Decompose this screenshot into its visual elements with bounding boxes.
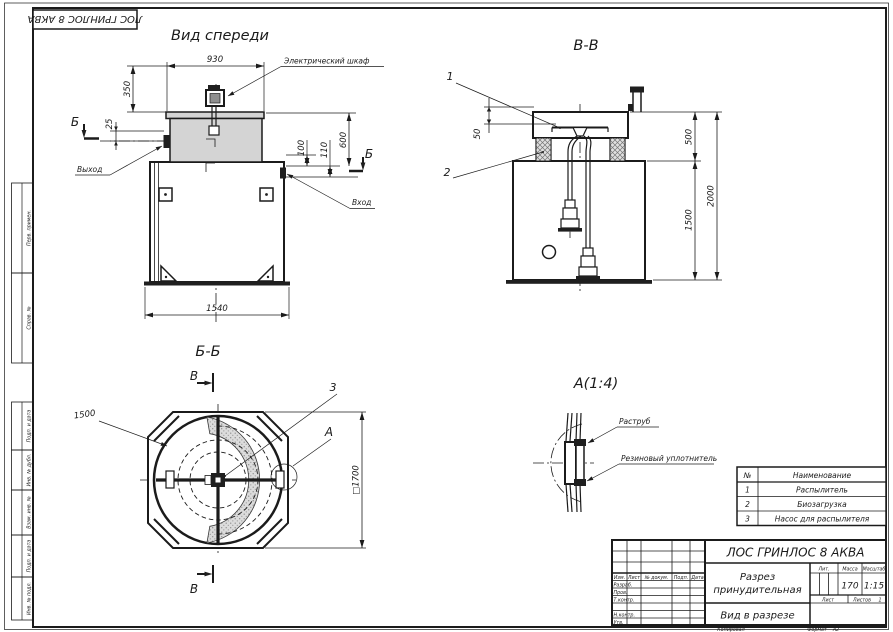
dim-text: 110	[320, 142, 330, 158]
detail-letter: А	[324, 425, 333, 439]
mass-value: 170	[841, 582, 858, 592]
doc-title: ЛОС ГРИНЛОС 8 АКВА	[726, 546, 865, 560]
section-letter: В	[190, 582, 198, 596]
margin-box-inv-dubl: Инв. № дубл.	[12, 450, 34, 490]
socket-body	[565, 442, 576, 484]
table-header-name: Наименование	[793, 471, 852, 480]
callout-number: 3	[330, 381, 337, 394]
section-view-vv: В-В	[444, 38, 723, 292]
base-plate	[144, 282, 290, 286]
dim-text: 350	[123, 81, 133, 97]
row-num: 2	[745, 500, 750, 509]
biofill-block-left	[536, 138, 551, 161]
top-stamp-text: ЛОС ГРИНЛОС 8 АКВА	[27, 13, 143, 24]
margin-label: Подп. и дата	[27, 540, 33, 573]
outlet-callout: Выход	[75, 146, 162, 175]
view-name-line1: Разрез	[740, 572, 775, 583]
dim-text: 1500	[685, 209, 695, 231]
socket-sleeve	[576, 445, 584, 481]
vent-pipe	[628, 87, 644, 113]
sheet-label: Лист	[821, 598, 834, 604]
dim-text: 1540	[206, 304, 228, 314]
callout-number: 1	[447, 70, 454, 83]
sheet-frame: ЛОС ГРИНЛОС 8 АКВА Перв. примен. Справ. …	[5, 3, 889, 630]
outlet-label: Выход	[77, 165, 102, 174]
row-tkontr: Т.контр.	[614, 598, 635, 604]
row-razrab: Разраб.	[614, 583, 633, 589]
dim-text: 2000	[707, 185, 717, 207]
margin-label: Подп. и дата	[27, 410, 33, 443]
margin-box-inv-podl: Инв. № подл.	[12, 577, 34, 620]
view-name-line2: принудительная	[713, 585, 801, 596]
seal-label: Резиновый уплотнитель	[621, 454, 717, 463]
view-type: Вид в разрезе	[720, 611, 794, 622]
section-marker-b-right: Б	[349, 147, 373, 171]
detail-a-callout: А	[293, 425, 333, 466]
section-marker-v-bottom: В	[190, 565, 213, 596]
detail-a-title: А(1:4)	[573, 376, 619, 392]
section-letter: Б	[71, 115, 79, 129]
section-letter: Б	[365, 147, 373, 161]
section-marker-b-left: Б	[71, 115, 99, 139]
socket-label: Раструб	[619, 417, 651, 426]
col-doc: № докум.	[644, 575, 669, 581]
scale-value: 1:15	[864, 582, 884, 592]
margin-box-sprav-no: Справ. №	[12, 273, 34, 363]
parts-table: № Наименование 1 Распылитель 2 Биозагруз…	[737, 467, 886, 526]
cabinet-callout: Электрический шкаф	[228, 57, 384, 97]
seal-callout: Резиновый уплотнитель	[587, 454, 717, 481]
mass-label: Масса	[842, 567, 857, 573]
dim-text: 100	[297, 140, 307, 156]
margin-box-podp-data-1: Подп. и дата	[12, 402, 34, 450]
base-plate	[506, 280, 652, 284]
margin-box-vzam-inv: Взам. инв. №	[12, 490, 34, 535]
row-num: 1	[745, 486, 750, 495]
coupling-right	[276, 471, 284, 488]
dim-text: 500	[685, 129, 695, 145]
copied-label: Копировал	[717, 627, 744, 632]
margin-label: Справ. №	[27, 306, 33, 329]
col-data: Дата	[690, 575, 703, 581]
drawing-sheet: ЛОС ГРИНЛОС 8 АКВА Перв. примен. Справ. …	[0, 0, 893, 632]
dim-text: 600	[339, 132, 349, 148]
inlet-callout: Вход	[287, 174, 375, 209]
dim-text: 50	[473, 129, 483, 140]
cabinet-label: Электрический шкаф	[283, 57, 370, 66]
row-name: Насос для распылителя	[775, 515, 870, 524]
dim-350: 350	[123, 66, 168, 112]
format-label: Формат	[807, 627, 827, 632]
row-nkontr: Н.контр.	[614, 613, 635, 619]
wall-pipe-penetration	[565, 413, 586, 512]
margin-label: Перв. примен.	[27, 210, 33, 246]
coupling-left	[166, 471, 174, 488]
callout-number: 2	[444, 166, 451, 179]
row-prov: Пров.	[614, 590, 628, 596]
margin-label: Взам. инв. №	[27, 496, 33, 529]
section-marker-v-top: В	[190, 369, 213, 392]
sheets-value: 1	[878, 598, 881, 604]
section-letter: В	[190, 369, 198, 383]
col-podp: Подп.	[674, 575, 689, 581]
margin-box-perv-primen: Перв. примен.	[12, 183, 34, 273]
left-margin-columns: Перв. примен. Справ. № Подп. и дата Инв.…	[12, 183, 34, 620]
margin-box-podp-data-2: Подп. и дата	[12, 535, 34, 577]
margin-label: Инв. № подл.	[27, 582, 33, 615]
section-bb-title: Б-Б	[195, 344, 220, 360]
row-utv: Утв.	[614, 620, 624, 626]
sheets-label: Листов	[852, 598, 871, 604]
dim-25: 25	[105, 119, 164, 150]
format-value: А2	[832, 627, 839, 632]
table-header-num: №	[743, 471, 752, 480]
outlet-stub	[164, 135, 171, 148]
biofill-block-right	[610, 138, 625, 161]
scale-label: Масштаб	[863, 567, 886, 573]
dim-text: □1700	[352, 465, 362, 495]
tank-front	[144, 162, 290, 286]
section-view-bb: Б-Б В	[73, 344, 366, 596]
margin-label: Инв. № дубл.	[27, 454, 33, 487]
socket-callout: Раструб	[588, 417, 659, 443]
section-vv-title: В-В	[573, 38, 598, 54]
row-name: Распылитель	[796, 486, 848, 495]
top-stamp: ЛОС ГРИНЛОС 8 АКВА	[27, 10, 143, 29]
row-name: Биозагрузка	[797, 500, 847, 509]
dim-text: 1500	[73, 409, 96, 422]
dim-text: 930	[207, 55, 223, 65]
title-block: Изм. Лист № докум. Подп. Дата Разраб. Пр…	[612, 540, 886, 632]
lit-label: Лит.	[817, 567, 829, 573]
drawing-canvas: ЛОС ГРИНЛОС 8 АКВА Перв. примен. Справ. …	[0, 0, 893, 632]
front-view-title: Вид спереди	[171, 28, 269, 44]
inlet-label: Вход	[352, 198, 371, 207]
dim-1540: 1540	[145, 287, 289, 319]
row-num: 3	[745, 515, 750, 524]
front-view: Вид спереди	[71, 28, 384, 322]
detail-view-a: А(1:4) Раструб Резиновый уплотнитель	[533, 376, 717, 512]
inlet-stub	[280, 168, 286, 179]
col-list: Лист	[627, 575, 640, 581]
col-izm: Изм.	[614, 575, 625, 581]
dim-text: 25	[105, 119, 115, 130]
